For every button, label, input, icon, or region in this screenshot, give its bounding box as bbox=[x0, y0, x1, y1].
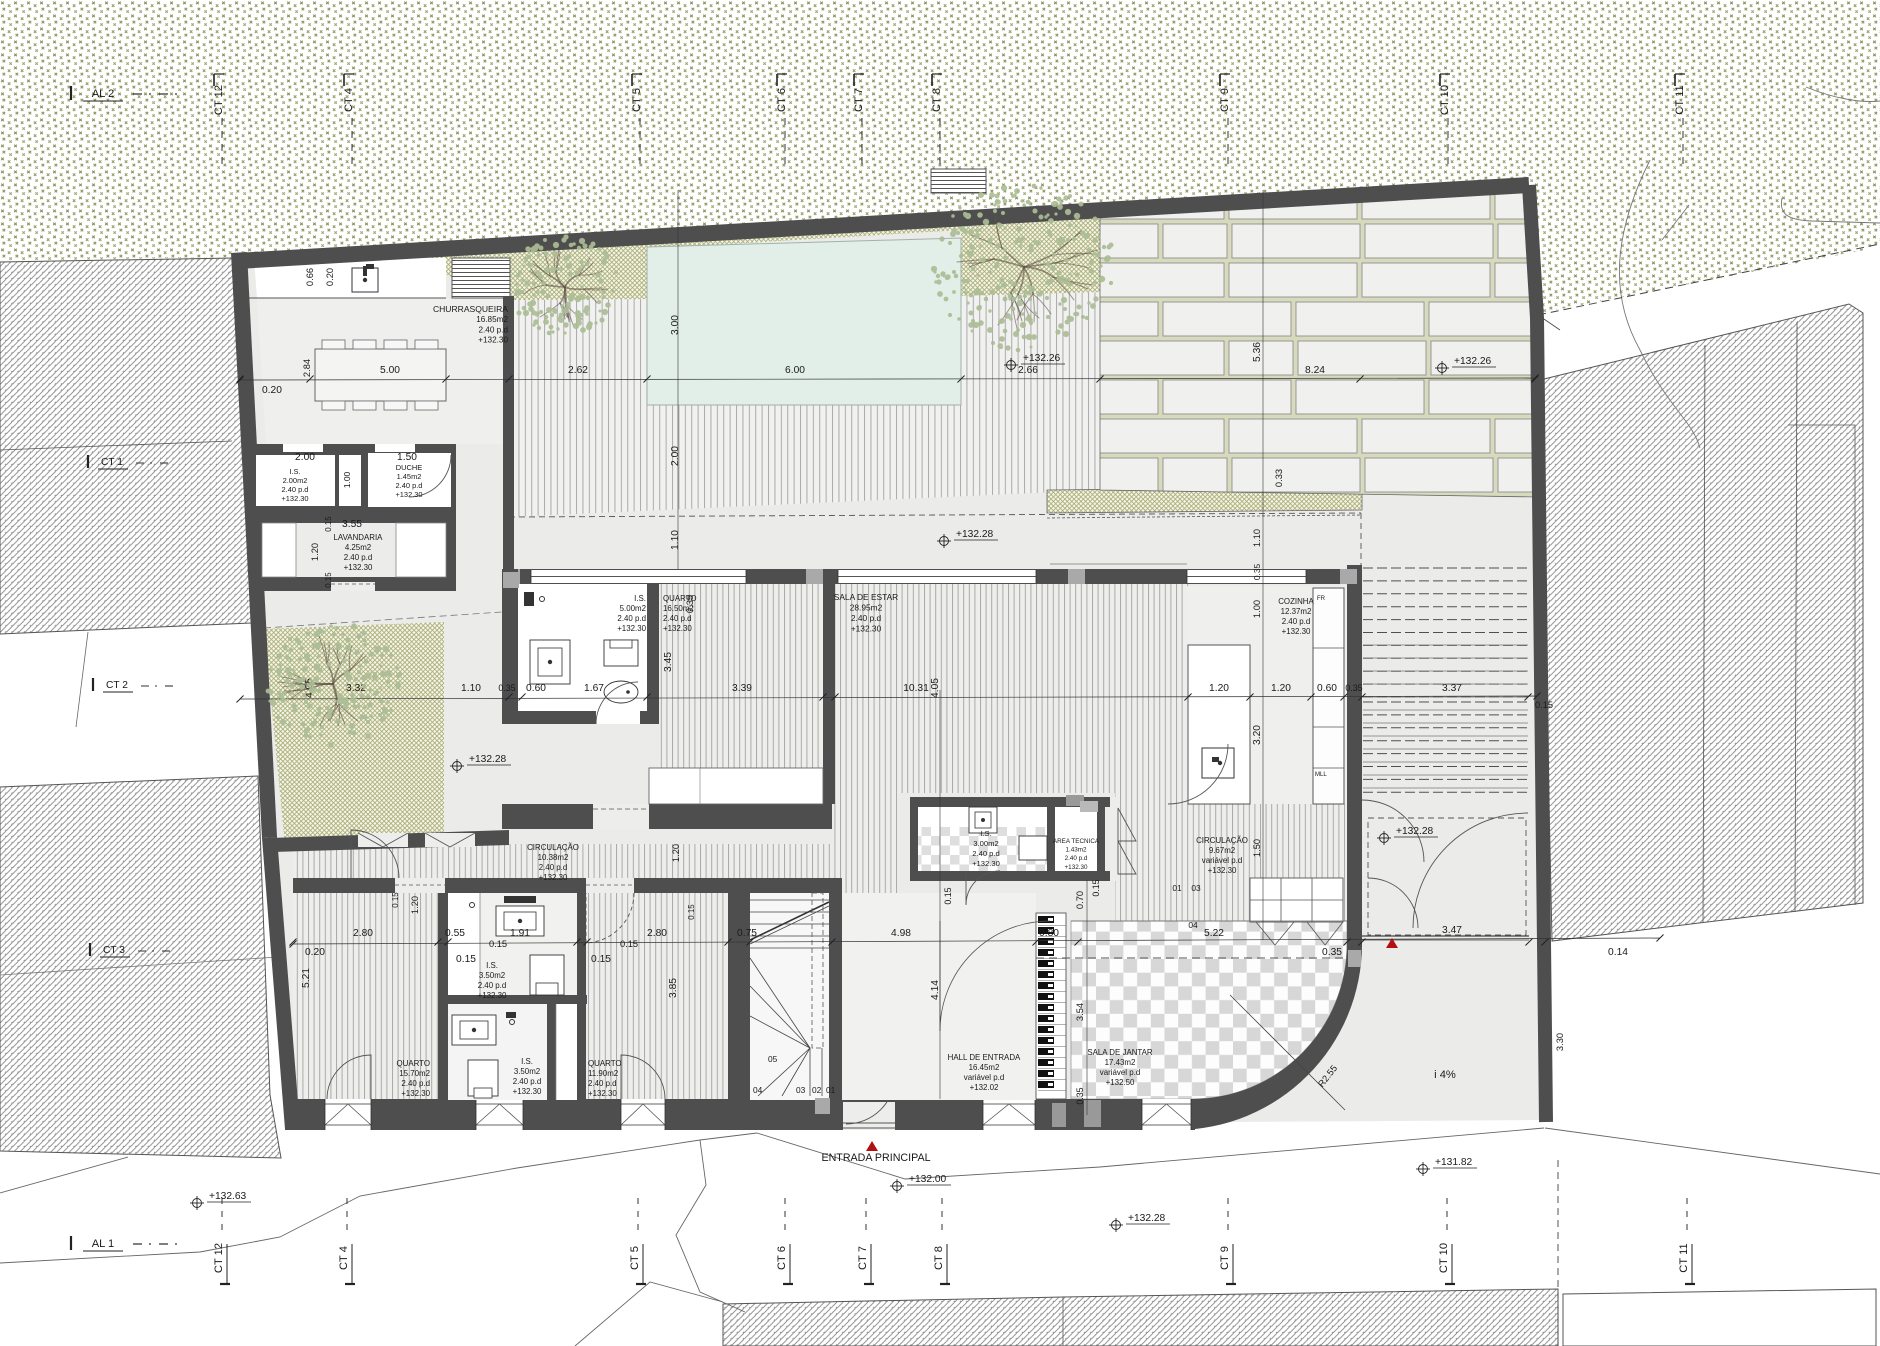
svg-text:3.50m2: 3.50m2 bbox=[479, 971, 505, 980]
svg-text:+132.28: +132.28 bbox=[469, 754, 507, 765]
svg-text:I.S.: I.S. bbox=[980, 829, 991, 838]
svg-text:2.40 p.d: 2.40 p.d bbox=[1065, 855, 1088, 862]
svg-text:2.84: 2.84 bbox=[302, 359, 312, 377]
svg-text:5.00m2: 5.00m2 bbox=[620, 604, 646, 613]
svg-text:8.24: 8.24 bbox=[1305, 365, 1325, 376]
svg-text:3.54: 3.54 bbox=[1075, 1003, 1085, 1021]
svg-text:2.40 p.d: 2.40 p.d bbox=[396, 481, 423, 490]
svg-text:CT 8: CT 8 bbox=[931, 88, 943, 112]
svg-text:3.45: 3.45 bbox=[663, 652, 674, 672]
svg-text:+132.63: +132.63 bbox=[209, 1191, 247, 1202]
svg-text:0.15: 0.15 bbox=[489, 939, 507, 949]
svg-text:12.37m2: 12.37m2 bbox=[1281, 607, 1312, 616]
svg-text:16.85m2: 16.85m2 bbox=[476, 315, 508, 324]
svg-text:1.00: 1.00 bbox=[1252, 600, 1262, 618]
svg-text:3.00m2: 3.00m2 bbox=[973, 839, 998, 848]
svg-text:0.35: 0.35 bbox=[1345, 683, 1362, 693]
svg-text:CT 7: CT 7 bbox=[857, 1246, 869, 1270]
svg-text:0.20: 0.20 bbox=[305, 947, 325, 958]
svg-text:CHURRASQUEIRA: CHURRASQUEIRA bbox=[433, 304, 508, 314]
svg-text:2.40 p.d: 2.40 p.d bbox=[1282, 617, 1311, 626]
svg-text:2.80: 2.80 bbox=[353, 928, 373, 939]
svg-text:+132.28: +132.28 bbox=[956, 529, 994, 540]
svg-text:I.S.: I.S. bbox=[289, 467, 300, 476]
svg-text:2.40 p.d: 2.40 p.d bbox=[972, 849, 1000, 858]
svg-text:2.80: 2.80 bbox=[647, 928, 667, 939]
svg-text:0.15: 0.15 bbox=[591, 954, 611, 965]
svg-text:17.43m2: 17.43m2 bbox=[1105, 1058, 1136, 1067]
svg-text:1.20: 1.20 bbox=[410, 896, 420, 914]
svg-text:2.00: 2.00 bbox=[295, 452, 315, 463]
svg-text:0.35: 0.35 bbox=[498, 683, 515, 693]
svg-text:+132.30: +132.30 bbox=[344, 563, 373, 572]
svg-text:+132.50: +132.50 bbox=[1106, 1078, 1135, 1087]
svg-text:CT 5: CT 5 bbox=[629, 1246, 641, 1270]
svg-text:+132.30: +132.30 bbox=[1282, 627, 1311, 636]
svg-text:2.40 p.d: 2.40 p.d bbox=[478, 981, 507, 990]
svg-text:i 4%: i 4% bbox=[1434, 1069, 1456, 1081]
svg-text:4.05: 4.05 bbox=[930, 678, 941, 698]
svg-text:+132.30: +132.30 bbox=[478, 991, 507, 1000]
svg-text:+132.30: +132.30 bbox=[281, 494, 308, 503]
svg-text:2.40 p.d: 2.40 p.d bbox=[344, 553, 373, 562]
svg-text:03: 03 bbox=[796, 1085, 806, 1095]
svg-text:4.25m2: 4.25m2 bbox=[345, 543, 371, 552]
svg-text:CIRCULAÇÃO: CIRCULAÇÃO bbox=[527, 843, 579, 852]
svg-text:1.50: 1.50 bbox=[397, 452, 417, 463]
svg-text:03: 03 bbox=[1191, 883, 1201, 893]
svg-text:02: 02 bbox=[812, 1085, 822, 1095]
svg-text:FR: FR bbox=[1317, 596, 1326, 602]
svg-text:1.91: 1.91 bbox=[510, 928, 530, 939]
svg-text:0.15: 0.15 bbox=[620, 939, 638, 949]
svg-text:16.50m2: 16.50m2 bbox=[663, 604, 694, 613]
svg-text:0.20: 0.20 bbox=[325, 268, 335, 286]
svg-text:3.47: 3.47 bbox=[1442, 925, 1462, 936]
svg-text:I.S.: I.S. bbox=[521, 1057, 533, 1066]
svg-text:+132.30: +132.30 bbox=[663, 624, 692, 633]
svg-text:01: 01 bbox=[1172, 883, 1182, 893]
svg-text:3.30: 3.30 bbox=[1555, 1033, 1565, 1051]
svg-text:2.40 p.d: 2.40 p.d bbox=[513, 1077, 542, 1086]
svg-text:CT 4: CT 4 bbox=[343, 88, 355, 112]
svg-text:4.98: 4.98 bbox=[891, 928, 911, 939]
svg-text:0.70: 0.70 bbox=[1075, 891, 1085, 909]
svg-text:+132.28: +132.28 bbox=[1128, 1213, 1166, 1224]
svg-text:0.35: 0.35 bbox=[1075, 1087, 1085, 1104]
svg-text:ENTRADA PRINCIPAL: ENTRADA PRINCIPAL bbox=[821, 1152, 930, 1164]
svg-text:COZINHA: COZINHA bbox=[1278, 597, 1314, 606]
svg-text:1.10: 1.10 bbox=[670, 530, 681, 550]
svg-text:0.15: 0.15 bbox=[943, 887, 953, 904]
svg-text:1.20: 1.20 bbox=[671, 844, 681, 862]
svg-text:0.60: 0.60 bbox=[1317, 683, 1337, 694]
svg-text:5.22: 5.22 bbox=[1204, 928, 1224, 939]
svg-text:I.S.: I.S. bbox=[486, 961, 498, 970]
svg-text:1.67: 1.67 bbox=[584, 683, 604, 694]
svg-text:CT 12: CT 12 bbox=[213, 85, 225, 115]
svg-text:CT 9: CT 9 bbox=[1219, 1246, 1231, 1270]
svg-text:CT 1: CT 1 bbox=[101, 457, 123, 468]
svg-text:0.15: 0.15 bbox=[456, 954, 476, 965]
svg-text:15.70m2: 15.70m2 bbox=[399, 1069, 430, 1078]
svg-text:16.45m2: 16.45m2 bbox=[969, 1063, 1000, 1072]
svg-text:+132.30: +132.30 bbox=[972, 859, 1000, 868]
svg-text:+132.02: +132.02 bbox=[970, 1083, 999, 1092]
svg-text:HALL DE ENTRADA: HALL DE ENTRADA bbox=[948, 1053, 1021, 1062]
svg-text:3.00: 3.00 bbox=[670, 315, 681, 335]
svg-text:+132.30: +132.30 bbox=[513, 1087, 542, 1096]
svg-text:5.21: 5.21 bbox=[301, 968, 312, 988]
svg-text:1.50: 1.50 bbox=[1252, 839, 1262, 857]
svg-text:1.20: 1.20 bbox=[1271, 683, 1291, 694]
svg-text:2.00m2: 2.00m2 bbox=[283, 476, 308, 485]
svg-text:3.55: 3.55 bbox=[342, 519, 362, 530]
svg-text:11.90m2: 11.90m2 bbox=[588, 1069, 618, 1078]
svg-text:0.75: 0.75 bbox=[737, 928, 757, 939]
svg-text:0.15: 0.15 bbox=[1091, 879, 1101, 896]
svg-text:1.20: 1.20 bbox=[1209, 683, 1229, 694]
svg-text:0.80: 0.80 bbox=[1039, 928, 1059, 939]
svg-text:2.40 p.d: 2.40 p.d bbox=[588, 1079, 617, 1088]
svg-text:CT 4: CT 4 bbox=[338, 1246, 350, 1270]
svg-text:I.S.: I.S. bbox=[634, 594, 646, 603]
svg-text:+132.30: +132.30 bbox=[588, 1089, 617, 1098]
svg-text:CT 3: CT 3 bbox=[103, 945, 125, 956]
svg-text:QUARTO: QUARTO bbox=[663, 594, 697, 603]
svg-text:DUCHE: DUCHE bbox=[396, 463, 422, 472]
svg-text:1.00: 1.00 bbox=[342, 472, 352, 489]
svg-text:0.14: 0.14 bbox=[1608, 947, 1628, 958]
svg-text:+132.30: +132.30 bbox=[539, 873, 568, 882]
svg-text:SALA DE ESTAR: SALA DE ESTAR bbox=[834, 592, 898, 602]
svg-text:4.14: 4.14 bbox=[930, 980, 941, 1000]
svg-text:0.15: 0.15 bbox=[324, 572, 333, 588]
svg-text:2.40 p.d: 2.40 p.d bbox=[663, 614, 692, 623]
svg-text:2.66: 2.66 bbox=[1018, 365, 1038, 376]
svg-text:9.67m2: 9.67m2 bbox=[1209, 846, 1235, 855]
svg-text:0.60: 0.60 bbox=[526, 683, 546, 694]
svg-text:CT 8: CT 8 bbox=[933, 1246, 945, 1270]
svg-text:0.15: 0.15 bbox=[391, 892, 400, 908]
svg-text:2.40 p.d: 2.40 p.d bbox=[851, 613, 882, 623]
svg-text:QUARTO: QUARTO bbox=[396, 1059, 430, 1068]
svg-text:05: 05 bbox=[768, 1054, 778, 1064]
svg-text:+132.30: +132.30 bbox=[395, 490, 422, 499]
svg-text:+132.28: +132.28 bbox=[1396, 826, 1434, 837]
svg-text:3.37: 3.37 bbox=[1442, 683, 1462, 694]
svg-text:CT 11: CT 11 bbox=[1674, 85, 1686, 114]
svg-text:0.33: 0.33 bbox=[1274, 469, 1284, 487]
svg-text:04: 04 bbox=[1188, 920, 1198, 930]
svg-text:0.55: 0.55 bbox=[445, 928, 465, 939]
svg-text:6.00: 6.00 bbox=[785, 365, 805, 376]
svg-text:SALA DE JANTAR: SALA DE JANTAR bbox=[1087, 1048, 1153, 1057]
svg-text:01: 01 bbox=[826, 1085, 836, 1095]
svg-text:5.00: 5.00 bbox=[380, 365, 400, 376]
svg-text:CT 5: CT 5 bbox=[631, 88, 643, 112]
svg-text:CT 12: CT 12 bbox=[213, 1243, 225, 1273]
svg-text:0.35: 0.35 bbox=[1252, 564, 1262, 581]
svg-text:04: 04 bbox=[753, 1085, 763, 1095]
svg-text:CT 11: CT 11 bbox=[1678, 1243, 1690, 1272]
svg-text:+132.26: +132.26 bbox=[1454, 356, 1492, 367]
svg-text:2.62: 2.62 bbox=[568, 365, 588, 376]
svg-text:5.36: 5.36 bbox=[1252, 342, 1263, 362]
svg-text:CT 2: CT 2 bbox=[106, 680, 128, 691]
svg-text:0.15: 0.15 bbox=[324, 516, 333, 532]
svg-text:AL 2: AL 2 bbox=[92, 88, 115, 100]
svg-text:1.20: 1.20 bbox=[310, 543, 320, 561]
svg-text:+132.30: +132.30 bbox=[1065, 864, 1088, 871]
svg-text:CT 6: CT 6 bbox=[776, 1246, 788, 1270]
svg-text:CIRCULAÇÃO: CIRCULAÇÃO bbox=[1196, 836, 1248, 845]
svg-text:3.20: 3.20 bbox=[1252, 725, 1263, 745]
svg-text:QUARTO: QUARTO bbox=[588, 1059, 622, 1068]
svg-text:2.40 p.d: 2.40 p.d bbox=[401, 1079, 430, 1088]
svg-text:2.00: 2.00 bbox=[670, 446, 681, 466]
svg-text:+132.30: +132.30 bbox=[401, 1089, 430, 1098]
svg-text:+131.82: +131.82 bbox=[1435, 1157, 1473, 1168]
svg-text:0.66: 0.66 bbox=[305, 268, 315, 286]
svg-text:MLL: MLL bbox=[1315, 772, 1327, 778]
svg-text:variável p.d: variável p.d bbox=[1100, 1068, 1140, 1077]
svg-text:CT 10: CT 10 bbox=[1438, 1243, 1450, 1273]
svg-text:CT 7: CT 7 bbox=[853, 88, 865, 112]
svg-text:1.43m2: 1.43m2 bbox=[1065, 847, 1087, 854]
svg-text:0.15: 0.15 bbox=[687, 904, 696, 920]
svg-text:+132.26: +132.26 bbox=[1023, 353, 1061, 364]
svg-text:0.15: 0.15 bbox=[1535, 700, 1553, 710]
svg-text:0.20: 0.20 bbox=[262, 385, 282, 396]
svg-text:LAVANDARIA: LAVANDARIA bbox=[334, 533, 384, 542]
svg-text:+132.30: +132.30 bbox=[1208, 866, 1237, 875]
svg-text:1.10: 1.10 bbox=[461, 683, 481, 694]
svg-text:10.31: 10.31 bbox=[903, 683, 929, 694]
svg-text:2.40 p.d: 2.40 p.d bbox=[539, 863, 568, 872]
svg-text:2.40 p.d: 2.40 p.d bbox=[478, 325, 508, 334]
svg-text:CT 9: CT 9 bbox=[1219, 88, 1231, 112]
svg-text:+132.30: +132.30 bbox=[617, 624, 646, 633]
svg-text:+132.30: +132.30 bbox=[851, 624, 882, 634]
svg-text:10.38m2: 10.38m2 bbox=[538, 853, 569, 862]
svg-text:1.45m2: 1.45m2 bbox=[397, 472, 422, 481]
svg-text:CT 6: CT 6 bbox=[776, 88, 788, 112]
svg-text:variável p.d: variável p.d bbox=[964, 1073, 1004, 1082]
svg-text:2.40 p.d: 2.40 p.d bbox=[617, 614, 646, 623]
svg-text:+132.30: +132.30 bbox=[478, 336, 508, 345]
svg-text:2.40 p.d: 2.40 p.d bbox=[282, 485, 309, 494]
svg-text:variável p.d: variável p.d bbox=[1202, 856, 1242, 865]
svg-text:1.10: 1.10 bbox=[1252, 529, 1262, 547]
svg-text:AREA TECNICA: AREA TECNICA bbox=[1053, 838, 1100, 845]
svg-text:3.39: 3.39 bbox=[732, 683, 752, 694]
svg-text:3.85: 3.85 bbox=[668, 978, 679, 998]
svg-text:28.95m2: 28.95m2 bbox=[850, 603, 883, 613]
svg-text:0.35: 0.35 bbox=[1322, 947, 1342, 958]
svg-text:CT 10: CT 10 bbox=[1439, 85, 1451, 115]
svg-text:AL 1: AL 1 bbox=[92, 1238, 115, 1250]
svg-text:3.50m2: 3.50m2 bbox=[514, 1067, 540, 1076]
svg-text:+132.00: +132.00 bbox=[909, 1174, 947, 1185]
